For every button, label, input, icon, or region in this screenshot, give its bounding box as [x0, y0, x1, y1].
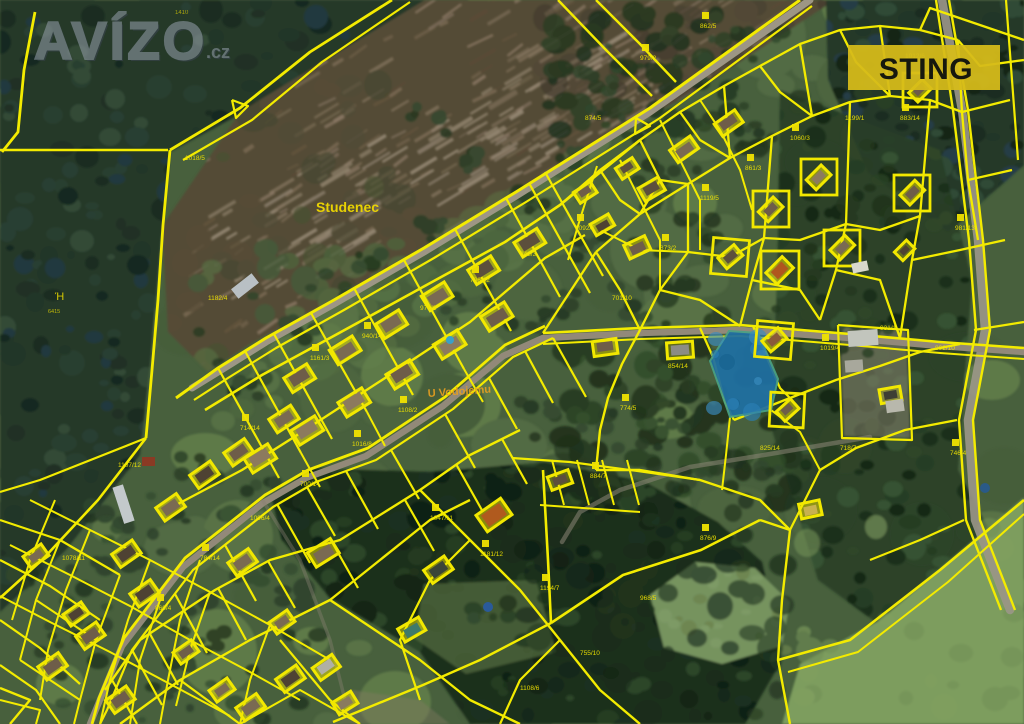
svg-text:892/10: 892/10: [935, 345, 955, 352]
svg-text:1181/12: 1181/12: [480, 551, 503, 558]
svg-text:978/2: 978/2: [420, 305, 437, 312]
svg-text:1092/7: 1092/7: [575, 225, 595, 232]
svg-text:Ή: Ή: [54, 291, 64, 303]
svg-text:1194/7: 1194/7: [540, 585, 560, 592]
svg-text:STING: STING: [879, 53, 973, 86]
svg-text:981/13: 981/13: [955, 225, 975, 232]
svg-text:746/4: 746/4: [950, 450, 967, 457]
svg-text:Studenec: Studenec: [316, 199, 379, 215]
svg-text:931/1: 931/1: [880, 325, 897, 332]
svg-text:854/14: 854/14: [668, 363, 688, 370]
svg-text:1096/4: 1096/4: [250, 515, 270, 522]
svg-text:861/3: 861/3: [745, 165, 762, 172]
svg-text:1018/5: 1018/5: [185, 155, 205, 162]
svg-text:884/7: 884/7: [590, 473, 607, 480]
svg-text:.cz: .cz: [206, 42, 230, 62]
svg-text:706/12: 706/12: [470, 277, 490, 284]
svg-text:1060/3: 1060/3: [790, 135, 810, 142]
svg-text:1108/6: 1108/6: [520, 685, 540, 692]
svg-text:1016/8: 1016/8: [352, 441, 372, 448]
svg-text:940/14: 940/14: [362, 333, 382, 340]
svg-text:1182/4: 1182/4: [208, 295, 228, 302]
svg-text:700/14: 700/14: [300, 481, 320, 488]
svg-text:718/7: 718/7: [840, 445, 857, 452]
svg-text:774/5: 774/5: [620, 405, 637, 412]
svg-text:1161/3: 1161/3: [310, 355, 330, 362]
svg-text:1108/2: 1108/2: [398, 407, 418, 414]
svg-text:1107/12: 1107/12: [118, 462, 141, 469]
svg-text:1119/5: 1119/5: [700, 195, 719, 202]
svg-text:825/14: 825/14: [760, 445, 780, 452]
svg-text:843/3: 843/3: [520, 251, 537, 258]
svg-text:AVÍZO: AVÍZO: [34, 11, 207, 71]
svg-text:883/14: 883/14: [900, 115, 920, 122]
svg-text:1078/11: 1078/11: [62, 555, 85, 562]
svg-text:1019/4: 1019/4: [820, 345, 840, 352]
svg-text:1199/1: 1199/1: [845, 115, 865, 122]
svg-text:1047/11: 1047/11: [430, 515, 453, 522]
svg-text:968/5: 968/5: [640, 595, 657, 602]
svg-text:860/4: 860/4: [155, 605, 172, 612]
svg-text:701/10: 701/10: [612, 295, 632, 302]
svg-text:874/5: 874/5: [585, 115, 602, 122]
svg-text:873/2: 873/2: [660, 245, 677, 252]
svg-text:714/14: 714/14: [240, 425, 260, 432]
svg-text:979/2: 979/2: [640, 55, 657, 62]
svg-text:876/9: 876/9: [700, 535, 717, 542]
svg-text:755/10: 755/10: [580, 650, 600, 657]
svg-text:784/14: 784/14: [200, 555, 220, 562]
svg-text:862/5: 862/5: [700, 23, 717, 30]
svg-text:6415: 6415: [48, 309, 60, 315]
